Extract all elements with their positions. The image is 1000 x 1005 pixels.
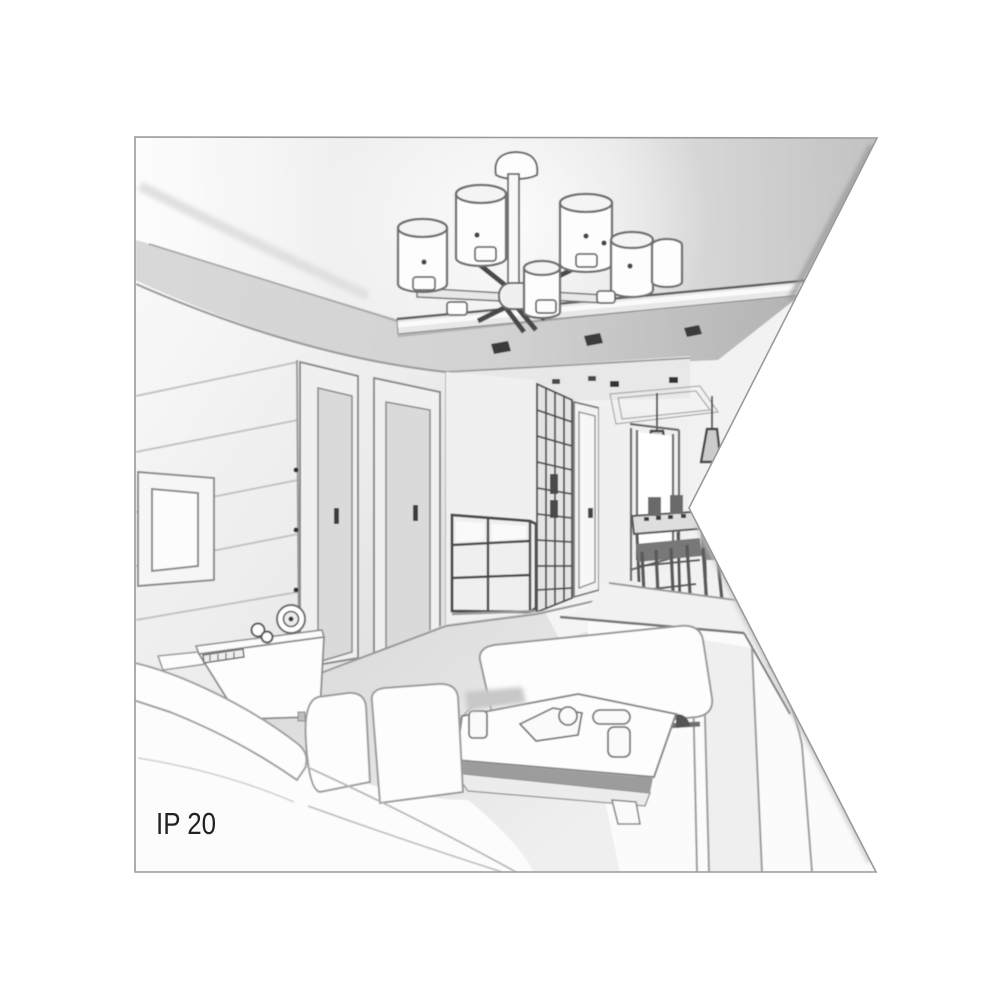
svg-text:IP 20: IP 20 [156, 806, 216, 841]
